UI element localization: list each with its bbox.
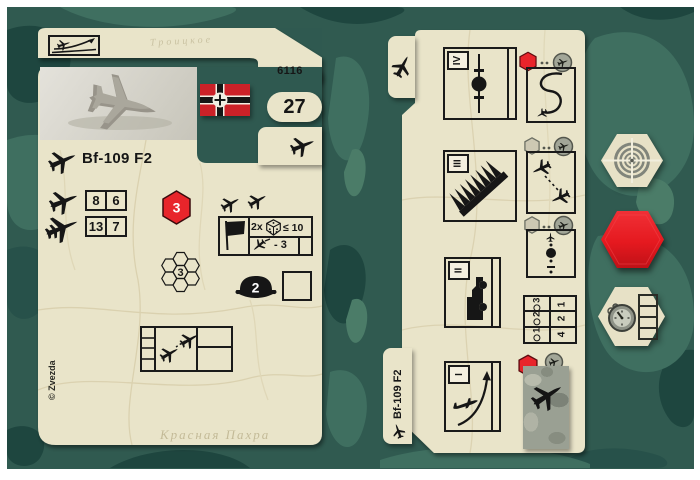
helmet-icon: 2 — [235, 274, 278, 300]
shot-down-icon — [250, 238, 272, 255]
svg-text:2: 2 — [252, 280, 260, 296]
red-order-token — [601, 211, 664, 268]
takeoff-icon — [448, 365, 496, 429]
shot-down-modifier: - 3 — [274, 239, 287, 251]
catalog-number: 6116 — [258, 61, 322, 81]
pursuer-plane-icon — [157, 342, 181, 365]
level-box-III: III — [443, 150, 517, 222]
map-label-bottom: Красная Пахра — [160, 427, 270, 443]
escort-plane-icon — [245, 189, 269, 213]
ammo-belt-icon — [447, 156, 513, 218]
point-cost-pill: 27 — [267, 92, 322, 122]
escort-plane-icon — [218, 192, 242, 216]
target-reticle-token — [601, 134, 663, 187]
unit-name-tab: Bf-109 F2 — [383, 348, 412, 444]
speed-table: 3 2 1 1 2 4 — [523, 295, 577, 344]
table-header-cell: 1 — [525, 326, 549, 342]
flag-icon — [220, 218, 246, 252]
dice-multiplier: 2x — [251, 221, 263, 233]
stopwatch-icon — [608, 304, 635, 331]
game-cards-scan: Троицкое Красная Пахра 6116 — [0, 0, 700, 480]
model-photo — [40, 67, 197, 140]
vs-bomber-icon — [41, 211, 83, 245]
table-value-cell: 1 — [549, 297, 575, 311]
loop-maneuver-icon — [528, 69, 574, 121]
pursuit-maneuver-icon — [528, 153, 574, 212]
token-connector — [539, 59, 551, 67]
order-hex-token: 3 — [162, 190, 191, 225]
hidden-plane-icon — [523, 366, 569, 449]
dice-threshold: ≤ 10 — [283, 222, 303, 234]
truck-icon — [450, 263, 494, 323]
table-header-cell: 2 — [525, 311, 549, 326]
divider — [298, 236, 300, 254]
dogfight-box — [140, 326, 233, 372]
camouflage-box — [523, 366, 569, 449]
stopwatch-track-token — [598, 287, 665, 346]
climb-icon — [50, 37, 98, 54]
altitude-marker-icon — [445, 49, 503, 118]
tab-plane-icon — [384, 49, 419, 84]
unit-type-box — [258, 127, 322, 165]
plane-tab — [388, 36, 415, 98]
title-plane-icon — [44, 144, 80, 174]
vs-bomber-values: 13 7 — [85, 216, 127, 237]
table-value-cell: 4 — [549, 326, 575, 342]
table-value-cell: 2 — [549, 311, 575, 326]
die-icon — [265, 219, 282, 236]
range-flower: 3 — [157, 248, 204, 296]
maneuver-box-straight — [526, 229, 576, 278]
flag-check-box: 2x ≤ 10 - 3 — [218, 216, 313, 256]
svg-text:3: 3 — [177, 267, 183, 279]
unit-name: Bf-109 F2 — [82, 150, 152, 168]
fighter-icon — [258, 127, 322, 165]
empty-marker-box — [282, 271, 312, 301]
flag-cell — [220, 218, 250, 254]
vs-fighter-values: 8 6 — [85, 190, 127, 211]
level-box-I: I — [444, 361, 501, 432]
level-box-strip — [507, 49, 509, 118]
climb-icon-box — [48, 35, 100, 56]
german-war-flag — [200, 84, 250, 116]
stat-cell: 13 — [85, 216, 107, 237]
table-header-cell: 3 — [525, 297, 549, 311]
flight-path-icon — [528, 231, 574, 276]
level-box-IV: IV — [443, 47, 517, 120]
level-box-II: II — [444, 257, 501, 328]
stat-cell: 6 — [105, 190, 127, 211]
stat-cell: 7 — [105, 216, 127, 237]
tab-plane-icon — [390, 423, 407, 440]
svg-text:3: 3 — [173, 200, 181, 216]
stat-cell: 8 — [85, 190, 107, 211]
maneuver-box-pursuit — [526, 151, 576, 214]
copyright: © Zvezda — [42, 330, 60, 400]
maneuver-box-loop — [526, 67, 576, 123]
